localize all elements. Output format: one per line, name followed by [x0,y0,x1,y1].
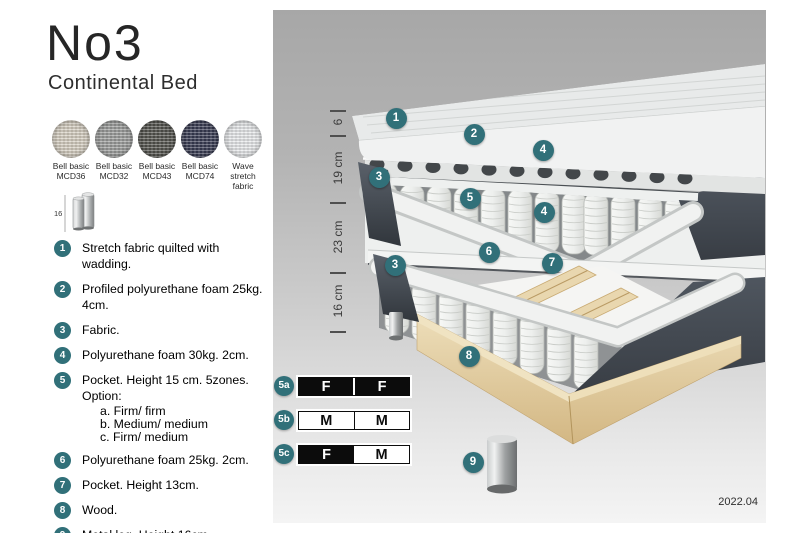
fabric-swatch-label: Bell basicMCD36 [52,162,90,182]
firmness-cell: M [354,412,410,429]
dimension-label: 16 cm [331,271,345,331]
legend-text: Fabric. [82,322,120,339]
legend-text: Pocket. Height 15 cm. 5zones. Option:a. … [82,372,269,444]
legend-list: 1Stretch fabric quilted with wadding.2Pr… [54,240,269,533]
callout-6: 6 [479,242,500,263]
fabric-swatch-circle[interactable] [224,120,262,158]
legend-number-badge: 2 [54,281,71,298]
legend-text: Stretch fabric quilted with wadding. [82,240,269,273]
fabric-swatch-mcd74[interactable]: Bell basicMCD74 [181,120,219,191]
callout-2: 2 [464,124,485,145]
legend-item-9: 9Metal leg. Height 16cm. [54,527,269,533]
callout-8: 8 [459,346,480,367]
firmness-row-badge-5b: 5b [274,410,294,430]
legend-item-8: 8Wood. [54,502,269,519]
front-left-leg [389,312,403,341]
firmness-bar-5c: FM [298,445,410,464]
leg-height-icon: 16 [52,188,114,243]
fabric-swatch-mcd36[interactable]: Bell basicMCD36 [52,120,90,191]
firmness-cell: F [299,446,354,463]
firmness-row-badge-5c: 5c [274,444,294,464]
fabric-swatches: Bell basicMCD36Bell basicMCD32Bell basic… [52,120,262,191]
legend-text: Profiled polyurethane foam 25kg. 4cm. [82,281,269,314]
callout-3: 3 [385,255,406,276]
legend-number-badge: 7 [54,477,71,494]
spec-sheet-page: No3 Continental Bed Bell basicMCD36Bell … [0,0,800,533]
legend-item-6: 6Polyurethane foam 25kg. 2cm. [54,452,269,469]
legend-number-badge: 3 [54,322,71,339]
legend-text: Metal leg. Height 16cm. [82,527,211,533]
legend-text: Polyurethane foam 25kg. 2cm. [82,452,249,469]
legend-item-5: 5Pocket. Height 15 cm. 5zones. Option:a.… [54,372,269,444]
fabric-swatch-mcd32[interactable]: Bell basicMCD32 [95,120,133,191]
firmness-bar-5a: FF [298,377,410,396]
callout-3: 3 [369,167,390,188]
page-subtitle: Continental Bed [48,72,198,95]
dimension-tick [330,331,346,333]
dimension-tick [330,202,346,204]
leg-icon-measure: 16 [54,209,62,218]
legend-number-badge: 8 [54,502,71,519]
firmness-cell: F [353,378,409,395]
legend-text: Wood. [82,502,117,519]
firmness-cell: F [299,378,353,395]
fabric-swatch-stretch-fabric[interactable]: Wavestretch fabric [224,120,262,191]
callout-4: 4 [534,202,555,223]
fabric-swatch-circle[interactable] [52,120,90,158]
fabric-swatch-circle[interactable] [95,120,133,158]
legend-item-2: 2Profiled polyurethane foam 25kg. 4cm. [54,281,269,314]
version-label: 2022.04 [718,496,758,508]
legend-item-1: 1Stretch fabric quilted with wadding. [54,240,269,273]
illustration-panel: 12345463789619 cm23 cm16 cm5aFF5bMM5cFM … [273,10,766,523]
firmness-row-badge-5a: 5a [274,376,294,396]
callout-9: 9 [463,452,484,473]
legend-item-3: 3Fabric. [54,322,269,339]
firmness-cell: M [354,446,409,463]
dimension-label: 23 cm [331,207,345,267]
front-center-leg [487,435,517,494]
callout-4: 4 [533,140,554,161]
legend-number-badge: 1 [54,240,71,257]
page-title: No3 [46,14,144,72]
fabric-swatch-label: Bell basicMCD32 [95,162,133,182]
legend-text: Pocket. Height 13cm. [82,477,199,494]
fabric-swatch-label: Bell basicMCD43 [138,162,176,182]
legend-number-badge: 5 [54,372,71,389]
firmness-cell: M [299,412,354,429]
legend-number-badge: 9 [54,527,71,533]
legend-number-badge: 4 [54,347,71,364]
callout-7: 7 [542,253,563,274]
fabric-swatch-label: Wavestretch fabric [224,162,262,191]
fabric-swatch-mcd43[interactable]: Bell basicMCD43 [138,120,176,191]
firmness-bar-5b: MM [298,411,410,430]
legend-number-badge: 6 [54,452,71,469]
legend-item-4: 4Polyurethane foam 30kg. 2cm. [54,347,269,364]
legend-text: Polyurethane foam 30kg. 2cm. [82,347,249,364]
legend-option: b. Medium/ medium [100,418,269,431]
legend-option: c. Firm/ medium [100,431,269,444]
fabric-swatch-label: Bell basicMCD74 [181,162,219,182]
callout-5: 5 [460,188,481,209]
fabric-swatch-circle[interactable] [181,120,219,158]
legend-option: a. Firm/ firm [100,405,269,418]
fabric-swatch-circle[interactable] [138,120,176,158]
dimension-label: 19 cm [331,138,345,198]
callout-1: 1 [386,108,407,129]
legend-item-7: 7Pocket. Height 13cm. [54,477,269,494]
